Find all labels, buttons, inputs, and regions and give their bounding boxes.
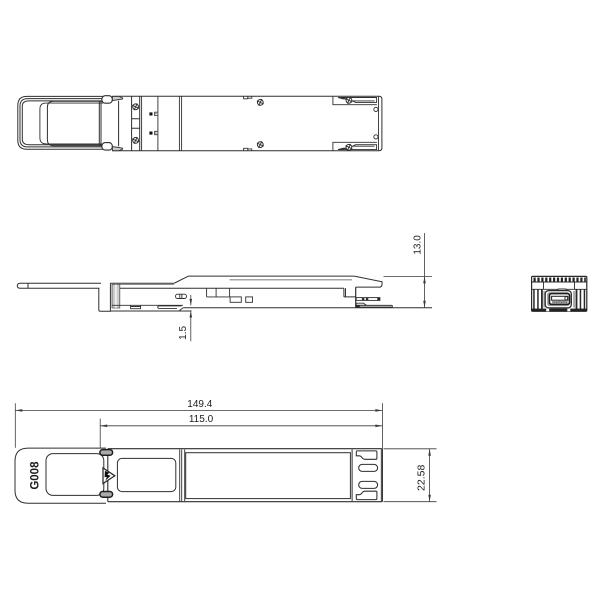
svg-text:149.4: 149.4 [187, 399, 212, 410]
svg-text:22.58: 22.58 [416, 465, 428, 491]
svg-text:13.0: 13.0 [413, 235, 424, 255]
svg-text:1.5: 1.5 [178, 326, 189, 340]
svg-text:115.0: 115.0 [189, 414, 214, 425]
svg-text:G008: G008 [29, 461, 41, 490]
